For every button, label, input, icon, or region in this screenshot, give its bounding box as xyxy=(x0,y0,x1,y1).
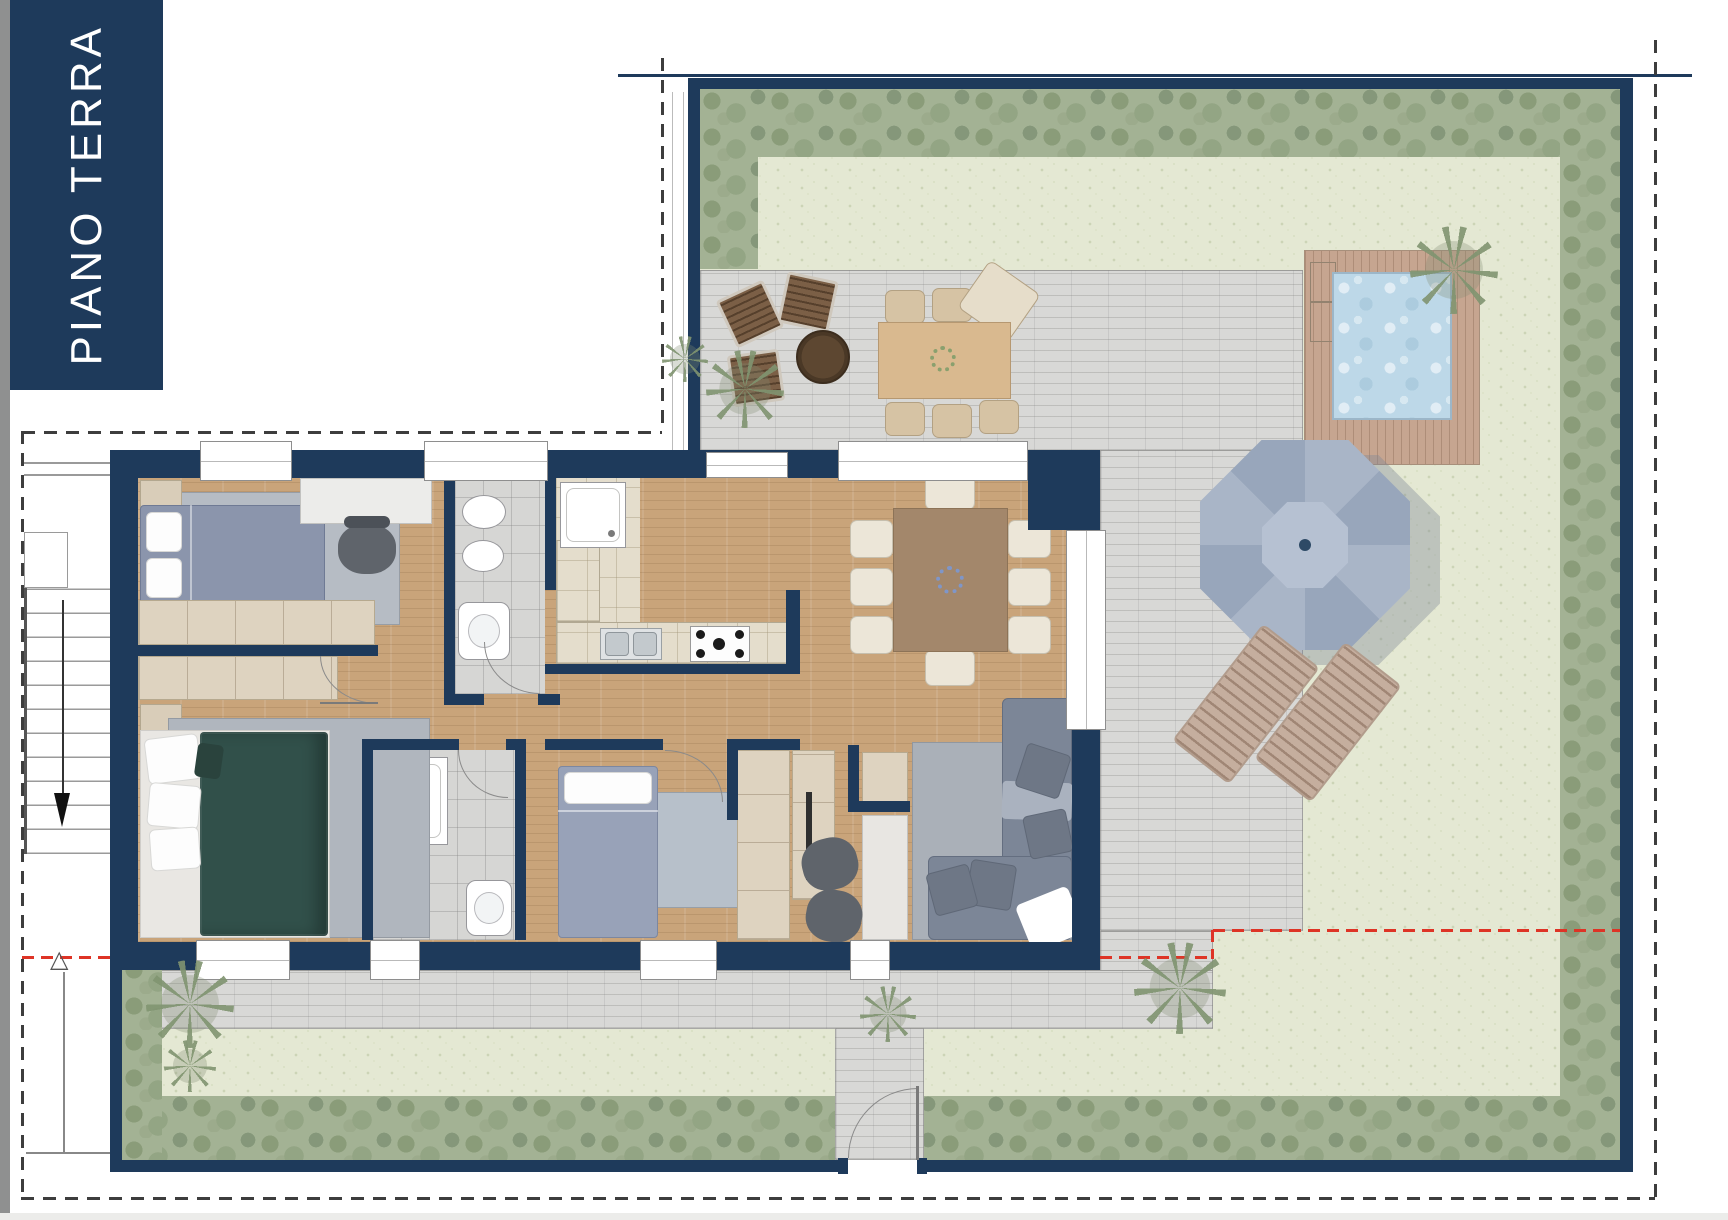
outdoor-centerpiece xyxy=(930,346,956,372)
master-pillow-1 xyxy=(143,733,202,785)
window-dining-east xyxy=(1066,530,1106,730)
hedge-west-corner xyxy=(700,89,758,269)
page-bottom-edge xyxy=(0,1213,1728,1220)
boundary-dash-top-vertical xyxy=(661,58,664,432)
stairs-arrow-down-icon xyxy=(54,793,70,827)
window-bedroom1 xyxy=(200,441,292,481)
wall-bed3-stub xyxy=(727,739,738,820)
bedroom1-duvet-fold xyxy=(190,505,192,605)
boundary-dash-east xyxy=(1654,40,1657,1197)
garden-wall-south-right xyxy=(920,1160,1633,1172)
outdoor-dining-chair-bottom-3 xyxy=(979,400,1019,434)
boundary-wall-west-lower xyxy=(110,956,122,1172)
window-study xyxy=(850,940,890,980)
bedroom1-pillow-2 xyxy=(146,558,182,598)
garden-wall-north xyxy=(688,78,1633,89)
wall-bed3-north xyxy=(545,739,663,750)
kitchen-counter-run xyxy=(556,622,792,664)
hob-burner-4 xyxy=(735,649,744,658)
kitchen-counter-return xyxy=(556,540,600,622)
page-left-edge xyxy=(0,0,10,1220)
palm-southwest-large xyxy=(146,960,234,1048)
hedge-north xyxy=(700,89,1620,157)
roof-edge-line xyxy=(618,74,1692,77)
section-line-east xyxy=(1213,929,1620,932)
kitchen-sink-basin-right xyxy=(633,632,657,656)
master-pillow-accent xyxy=(194,742,224,779)
title-block: PIANO TERRA xyxy=(10,0,163,390)
bedroom1-pillow-1 xyxy=(146,512,182,552)
outdoor-dining-chair-bottom-1 xyxy=(885,402,925,436)
entry-arrow-line xyxy=(63,972,65,1152)
footing-line-2 xyxy=(683,92,684,450)
gate-post-right xyxy=(917,1158,927,1174)
window-bedroom3 xyxy=(640,940,717,980)
master-door-leaf xyxy=(320,702,378,704)
wall-bath1-south-b xyxy=(538,694,560,705)
wall-bath1-west xyxy=(444,478,455,705)
window-dining-north xyxy=(838,441,1028,481)
patio-chair-2 xyxy=(777,271,839,333)
study-cabinet xyxy=(862,752,908,806)
stairs-landing-box xyxy=(24,532,68,588)
study-desk xyxy=(862,815,908,940)
terrace-door xyxy=(706,452,788,478)
bedroom1-desk-chair-back xyxy=(344,516,390,528)
bathroom1-toilet xyxy=(462,495,506,529)
hedge-east xyxy=(1560,89,1620,1160)
bedroom3-duvet-fold xyxy=(558,810,658,812)
umbrella-pole xyxy=(1299,539,1311,551)
boundary-dash-west-horizontal xyxy=(22,431,662,434)
window-bath1 xyxy=(424,441,548,481)
hob-burner-2 xyxy=(735,630,744,639)
window-bath2 xyxy=(370,940,420,980)
entry-arrow-up-icon: △ xyxy=(50,948,68,972)
bathroom1-bidet xyxy=(462,540,504,572)
garden-wall-east xyxy=(1620,78,1633,1172)
gate-post-left xyxy=(838,1158,848,1174)
floor-plan-canvas: PIANO TERRA △ xyxy=(0,0,1728,1220)
wall-study-horizontal xyxy=(848,801,910,812)
wall-kitchen-post xyxy=(786,590,800,674)
dining-centerpiece xyxy=(936,566,964,594)
wall-bath1-east xyxy=(545,478,556,590)
hob-burner-center xyxy=(713,638,725,650)
shower-drain xyxy=(608,530,615,537)
wall-bath2-west xyxy=(362,739,373,940)
garden-wall-south-left xyxy=(110,1160,845,1172)
floor-title: PIANO TERRA xyxy=(62,24,112,365)
entry-base-line xyxy=(26,1152,110,1154)
hob-burner-3 xyxy=(696,649,705,658)
dining-chair-left-1 xyxy=(850,520,893,558)
patio-coffee-table xyxy=(796,330,850,384)
stairs-direction-line xyxy=(62,600,64,795)
bedroom1-desk-chair xyxy=(338,524,396,574)
palm-southeast xyxy=(1134,942,1226,1034)
bedroom3-wardrobe xyxy=(737,750,790,940)
master-pillow-2 xyxy=(146,782,202,830)
sofa-cushion-2 xyxy=(1022,808,1074,860)
stairs-rail xyxy=(24,588,27,854)
outdoor-dining-chair-top-1 xyxy=(885,290,925,324)
bedroom1-wardrobe xyxy=(138,600,375,645)
master-pillow-3 xyxy=(149,826,202,871)
dining-chair-right-3 xyxy=(1008,616,1051,654)
house-corner-post xyxy=(1028,450,1100,530)
wall-bed1-master xyxy=(138,645,378,656)
palm-terrace-small xyxy=(662,336,708,382)
wall-bath2-east xyxy=(515,750,526,940)
wall-bed3-north-b xyxy=(738,739,800,750)
gate-door-leaf xyxy=(916,1086,919,1160)
dining-chair-left-2 xyxy=(850,568,893,606)
dining-chair-right-2 xyxy=(1008,568,1051,606)
hob-burner-1 xyxy=(696,630,705,639)
outdoor-dining-chair-bottom-2 xyxy=(932,404,972,438)
kitchen-sink-basin-left xyxy=(605,632,629,656)
palm-south-small xyxy=(860,986,916,1042)
palm-southwest-small xyxy=(164,1040,216,1092)
wall-bath2-north-b xyxy=(506,739,526,750)
palm-terrace-large xyxy=(706,350,784,428)
house-wall-west xyxy=(110,450,138,970)
dining-chair-bottom xyxy=(925,650,975,686)
palm-pool xyxy=(1410,226,1498,314)
master-wardrobe xyxy=(138,656,338,700)
stairs-landing-line-2 xyxy=(24,474,110,476)
wall-kitchen-counter xyxy=(545,664,800,674)
dining-chair-left-3 xyxy=(850,616,893,654)
bedroom3-pillow xyxy=(564,772,652,804)
bathroom2-sink-basin xyxy=(474,892,504,924)
garden-wall-west xyxy=(688,78,700,450)
wall-bath1-south-a xyxy=(444,694,484,705)
stairs-landing-line-1 xyxy=(24,462,110,464)
wall-bath2-north-a xyxy=(362,739,459,750)
boundary-dash-south xyxy=(21,1197,1655,1200)
footing-line-1 xyxy=(672,92,673,450)
